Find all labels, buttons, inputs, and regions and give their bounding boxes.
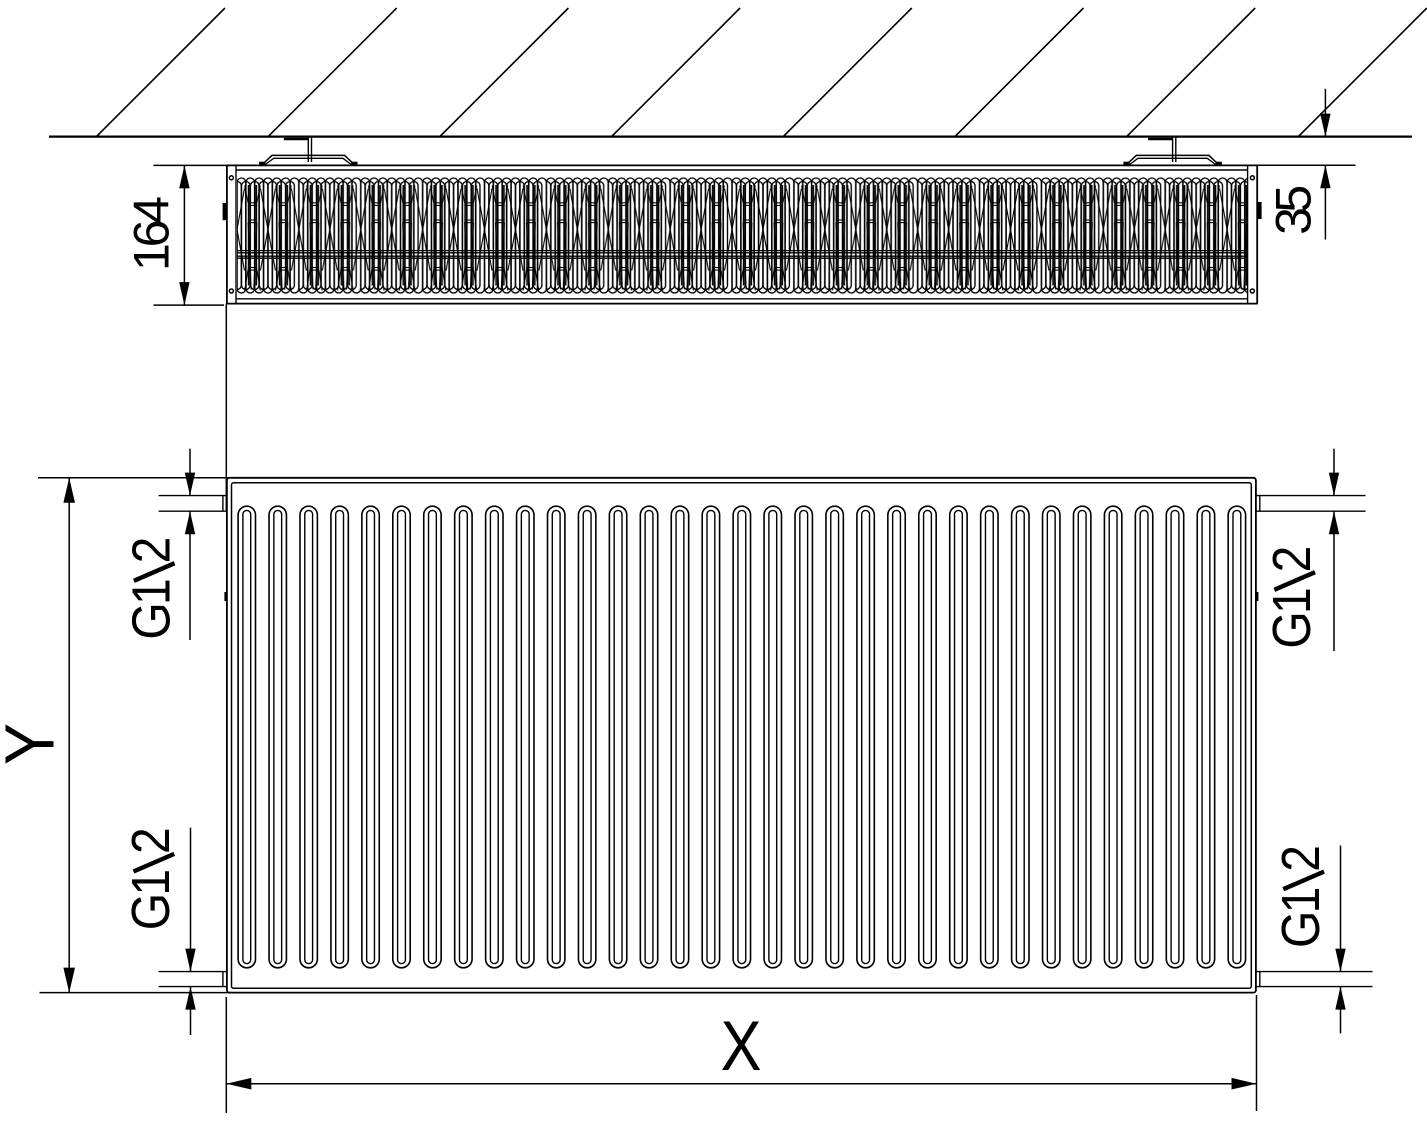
svg-text:1: 1 [1270,887,1330,914]
svg-text:2: 2 [120,827,180,854]
svg-text:164: 164 [124,196,180,271]
svg-text:1: 1 [1261,587,1321,614]
svg-text:1: 1 [120,869,180,896]
svg-text:35: 35 [1265,185,1321,235]
svg-text:2: 2 [1261,546,1321,573]
svg-text:G: G [121,602,181,639]
svg-text:X: X [721,1006,762,1085]
svg-text:G: G [120,893,180,930]
svg-text:G: G [1261,611,1321,648]
svg-text:G: G [1270,911,1330,948]
svg-text:2: 2 [121,537,181,564]
svg-text:Y: Y [0,723,69,765]
svg-text:2: 2 [1270,845,1330,872]
svg-text:1: 1 [121,578,181,605]
